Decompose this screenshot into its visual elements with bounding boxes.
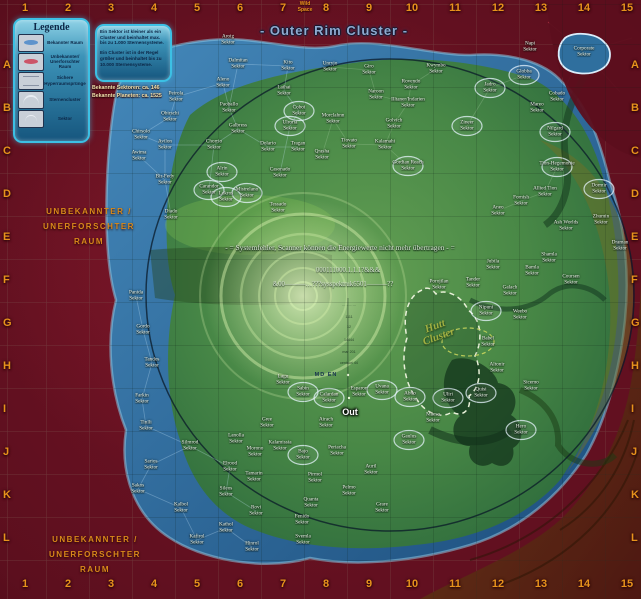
sector-label: BajoSektor bbox=[296, 449, 310, 460]
grid-column-number-top: 5 bbox=[194, 2, 200, 14]
sector-label: KalamahiSektor bbox=[375, 139, 395, 150]
sector-suffix: Sektor bbox=[283, 126, 298, 132]
sector-suffix: Sektor bbox=[144, 465, 158, 471]
sector-label: HeroSektor bbox=[514, 424, 528, 435]
grid-column-number-top: 1 bbox=[22, 2, 28, 14]
sector-label: DalmitanSektor bbox=[228, 58, 247, 69]
known-planets-count: Bekannte Planeten: ca. 1525 bbox=[92, 93, 162, 101]
sector-label: RovendoSektor bbox=[402, 79, 421, 90]
sector-suffix: Sektor bbox=[249, 511, 263, 517]
sector-label: NipuniSektor bbox=[479, 305, 493, 316]
sector-suffix: Sektor bbox=[547, 132, 563, 138]
sector-label: GolvichSektor bbox=[386, 118, 403, 129]
sector-label: MaesoSektor bbox=[426, 412, 440, 423]
sector-label: TiovatoSektor bbox=[341, 138, 357, 149]
sector-label: ChirsoloSektor bbox=[132, 129, 150, 140]
sector-label: ZhuminSektor bbox=[593, 214, 609, 225]
sector-label: AneoSektor bbox=[491, 205, 505, 216]
grid-column-number-top: 2 bbox=[65, 2, 71, 14]
grid-row-letter-right: E bbox=[631, 231, 638, 243]
sector-suffix: Sektor bbox=[490, 368, 505, 374]
sector-suffix: Sektor bbox=[562, 280, 579, 286]
grid-row-letter-left: L bbox=[3, 532, 10, 544]
sector-suffix: Sektor bbox=[474, 393, 488, 399]
sector-label: Gordian ReachSektor bbox=[392, 160, 423, 171]
sector-suffix: Sektor bbox=[228, 64, 247, 70]
sector-suffix: Sektor bbox=[276, 380, 290, 386]
sector-label: DormirSektor bbox=[591, 183, 606, 194]
sector-suffix: Sektor bbox=[483, 88, 497, 94]
sector-label: PorojilanSektor bbox=[429, 279, 448, 290]
sector-label: JadroSektor bbox=[483, 82, 497, 93]
grid-column-number-bottom: 15 bbox=[621, 578, 633, 590]
sector-label: GrareSektor bbox=[375, 502, 389, 513]
legend-swatch-blob-red bbox=[18, 53, 44, 71]
sector-suffix: Sektor bbox=[295, 520, 309, 526]
sector-label: WeeboSektor bbox=[513, 309, 527, 320]
legend-item-label: Unbekannter/ Unerforschter Raum bbox=[44, 54, 86, 70]
lines-icon bbox=[23, 76, 39, 86]
sector-suffix: Sektor bbox=[322, 119, 345, 125]
scanner-tick-label: ………… bbox=[342, 303, 356, 307]
sector-suffix: Sektor bbox=[392, 166, 423, 172]
sector-suffix: Sektor bbox=[135, 399, 149, 405]
grid-row-letter-right: B bbox=[631, 102, 639, 114]
sector-label: SilmrodSektor bbox=[182, 440, 199, 451]
sector-label: LekrosSektor bbox=[219, 191, 233, 202]
sector-suffix: Sektor bbox=[328, 451, 346, 457]
sector-suffix: Sektor bbox=[291, 147, 306, 153]
sector-suffix: Sektor bbox=[145, 363, 160, 369]
known-sectors-count: Bekannte Sektoren: ca. 146 bbox=[92, 85, 162, 93]
grid-row-letter-right: A bbox=[631, 59, 639, 71]
sector-suffix: Sektor bbox=[513, 315, 527, 321]
sector-suffix: Sektor bbox=[525, 271, 539, 277]
sector-label: CoboiSektor bbox=[292, 105, 306, 116]
system-error-text: - = Systemfehler, Scanner können die Ene… bbox=[225, 243, 455, 252]
hutt-cluster-label: Hutt Cluster bbox=[418, 316, 457, 348]
sector-label: AltonirSektor bbox=[490, 362, 505, 373]
sector-suffix: Sektor bbox=[364, 470, 378, 476]
sector-label: AroigSektor bbox=[221, 34, 235, 45]
sector-suffix: Sektor bbox=[514, 430, 528, 436]
sector-suffix: Sektor bbox=[403, 397, 417, 403]
scanner-tick-label: 14444 bbox=[344, 338, 354, 342]
sector-suffix: Sektor bbox=[533, 192, 557, 198]
grid-row-letter-left: H bbox=[3, 360, 11, 372]
sector-suffix: Sektor bbox=[323, 67, 338, 73]
sector-label: EsparonSektor bbox=[351, 386, 368, 397]
grid-row-letter-right: I bbox=[631, 403, 634, 415]
legend-swatch-arc bbox=[18, 91, 44, 109]
grid-row-letter-right: C bbox=[631, 145, 639, 157]
grid-column-number-bottom: 14 bbox=[578, 578, 590, 590]
star-map: - Outer Rim Cluster - Wild Space UNBEKAN… bbox=[0, 0, 641, 599]
sector-label: CobadoSektor bbox=[549, 91, 565, 102]
sector-suffix: Sektor bbox=[466, 283, 480, 289]
sector-label: ElroodSektor bbox=[223, 461, 237, 472]
sector-label: QrashaSektor bbox=[315, 149, 330, 160]
sector-suffix: Sektor bbox=[161, 117, 179, 123]
sector-suffix: Sektor bbox=[281, 66, 295, 72]
scanner-code-line-1: 000111000.1.1.1?&&& bbox=[316, 267, 380, 274]
scanner-tick-label: mar 201 bbox=[342, 350, 355, 354]
sector-suffix: Sektor bbox=[174, 508, 188, 514]
sector-suffix: Sektor bbox=[131, 489, 145, 495]
sector-suffix: Sektor bbox=[426, 418, 440, 424]
sector-label: Allied TionSektor bbox=[533, 186, 557, 197]
sector-suffix: Sektor bbox=[223, 467, 237, 473]
sector-suffix: Sektor bbox=[402, 440, 417, 446]
grid-row-letter-left: D bbox=[3, 188, 11, 200]
sector-label: AvilonSektor bbox=[158, 139, 172, 150]
sector-suffix: Sektor bbox=[441, 398, 455, 404]
grid-column-number-top: 10 bbox=[406, 2, 418, 14]
legend-box: Legende Bekannter RaumUnbekannter/ Unerf… bbox=[13, 18, 90, 143]
sector-suffix: Sektor bbox=[612, 246, 629, 252]
grid-column-number-bottom: 1 bbox=[22, 578, 28, 590]
sector-label: SariosSektor bbox=[144, 459, 158, 470]
sector-suffix: Sektor bbox=[247, 452, 264, 458]
sector-suffix: Sektor bbox=[260, 423, 274, 429]
sector-label: GiroSektor bbox=[362, 64, 376, 75]
sector-label: SileosSektor bbox=[219, 486, 233, 497]
grid-row-letter-left: C bbox=[3, 145, 11, 157]
sector-suffix: Sektor bbox=[549, 97, 565, 103]
sector-suffix: Sektor bbox=[277, 91, 291, 97]
grid-column-number-top: 15 bbox=[621, 2, 633, 14]
sector-label: NaroonSektor bbox=[368, 89, 384, 100]
sector-suffix: Sektor bbox=[426, 69, 445, 75]
sector-label: CorporateSektor bbox=[574, 46, 595, 57]
sector-suffix: Sektor bbox=[158, 145, 172, 151]
sector-suffix: Sektor bbox=[481, 342, 495, 348]
sector-label: DolarioSektor bbox=[260, 141, 276, 152]
sector-suffix: Sektor bbox=[375, 390, 389, 396]
sector-label: PelmoSektor bbox=[342, 485, 356, 496]
sector-label: SicemoSektor bbox=[523, 380, 539, 391]
legend-item: Bekannter Raum bbox=[15, 33, 88, 52]
info-box-paragraph-cluster: Ein Cluster ist in der Regel größer und … bbox=[100, 50, 167, 67]
grid-row-letter-right: D bbox=[631, 188, 639, 200]
grid-row-letter-right: K bbox=[631, 489, 639, 501]
legend-item-label: Sternencluster bbox=[44, 97, 86, 102]
sector-suffix: Sektor bbox=[295, 540, 311, 546]
sector-suffix: Sektor bbox=[429, 285, 448, 291]
sector-label: JubilaSektor bbox=[486, 259, 500, 270]
legend-item: Sektor bbox=[15, 109, 88, 128]
sector-suffix: Sektor bbox=[221, 40, 235, 46]
sector-suffix: Sektor bbox=[169, 97, 184, 103]
arc2-icon bbox=[25, 115, 37, 122]
grid-column-number-top: 8 bbox=[323, 2, 329, 14]
grid-row-letter-left: E bbox=[3, 231, 10, 243]
grid-column-number-bottom: 12 bbox=[492, 578, 504, 590]
legend-item: Sternencluster bbox=[15, 90, 88, 109]
sector-suffix: Sektor bbox=[503, 291, 518, 297]
sector-suffix: Sektor bbox=[139, 426, 153, 432]
sector-label: GreeSektor bbox=[260, 417, 274, 428]
sector-suffix: Sektor bbox=[341, 144, 357, 150]
sector-suffix: Sektor bbox=[315, 155, 330, 161]
legend-title: Legende bbox=[15, 22, 88, 33]
sector-suffix: Sektor bbox=[541, 258, 557, 264]
sector-suffix: Sektor bbox=[351, 392, 368, 398]
md-en-label: MD EN bbox=[315, 372, 338, 378]
scanner-tick-label: 12 bbox=[347, 325, 351, 329]
sector-label: HinrolSektor bbox=[245, 541, 259, 552]
grid-row-letter-right: H bbox=[631, 360, 639, 372]
sector-suffix: Sektor bbox=[593, 220, 609, 226]
sector-suffix: Sektor bbox=[319, 423, 333, 429]
sector-suffix: Sektor bbox=[199, 190, 218, 196]
out-label: Out bbox=[342, 407, 358, 417]
grid-row-letter-right: J bbox=[631, 446, 637, 458]
sector-label: GaulusSektor bbox=[402, 434, 417, 445]
sector-label: AirachSektor bbox=[319, 417, 333, 428]
sector-suffix: Sektor bbox=[460, 126, 474, 132]
sector-label: TamarinSektor bbox=[245, 471, 262, 482]
sector-label: KwymboSektor bbox=[426, 63, 445, 74]
sector-label: PeriachaSektor bbox=[328, 445, 346, 456]
sector-suffix: Sektor bbox=[574, 52, 595, 58]
statistics-text: Bekannte Sektoren: ca. 146 Bekannte Plan… bbox=[92, 85, 162, 101]
blob-blue-icon bbox=[24, 40, 38, 45]
sector-label: PaoballoSektor bbox=[220, 102, 238, 113]
sector-suffix: Sektor bbox=[216, 83, 230, 89]
sector-suffix: Sektor bbox=[479, 311, 493, 317]
sector-suffix: Sektor bbox=[136, 330, 150, 336]
sector-label: QuantaSektor bbox=[304, 497, 319, 508]
sector-suffix: Sektor bbox=[516, 75, 531, 81]
sector-suffix: Sektor bbox=[296, 455, 310, 461]
sector-label: CarandorSektor bbox=[199, 184, 218, 195]
sector-suffix: Sektor bbox=[182, 446, 199, 452]
grid-row-letter-right: F bbox=[631, 274, 638, 286]
sector-suffix: Sektor bbox=[270, 208, 287, 214]
grid-column-number-bottom: 10 bbox=[406, 578, 418, 590]
sector-suffix: Sektor bbox=[156, 180, 175, 186]
sector-suffix: Sektor bbox=[219, 528, 233, 534]
sector-suffix: Sektor bbox=[219, 492, 233, 498]
sector-suffix: Sektor bbox=[270, 173, 290, 179]
sector-label: AwimaSektor bbox=[132, 150, 147, 161]
info-box-paragraph-sektor: Ein Sektor ist kleiner als ein Cluster u… bbox=[100, 29, 167, 46]
sector-label: UnryjoSektor bbox=[323, 61, 338, 72]
sector-label: GalachSektor bbox=[503, 285, 518, 296]
sector-label: FenidoSektor bbox=[295, 514, 309, 525]
legend-swatch-blob-blue bbox=[18, 34, 44, 52]
sector-label: AlenoSektor bbox=[216, 77, 230, 88]
sector-label: GlobbaSektor bbox=[516, 69, 531, 80]
sector-suffix: Sektor bbox=[591, 189, 606, 195]
sector-label: ZineerSektor bbox=[460, 120, 474, 131]
sector-label: LaihaiSektor bbox=[277, 85, 291, 96]
map-title: - Outer Rim Cluster - bbox=[260, 23, 408, 38]
sector-label: CasonadoSektor bbox=[270, 167, 290, 178]
sector-suffix: Sektor bbox=[229, 129, 247, 135]
grid-row-letter-left: B bbox=[3, 102, 11, 114]
legend-item-label: Sektor bbox=[44, 116, 86, 121]
sector-suffix: Sektor bbox=[268, 446, 291, 452]
sector-suffix: Sektor bbox=[219, 197, 233, 203]
sector-label: AurilSektor bbox=[364, 464, 378, 475]
sector-label: BabelSektor bbox=[481, 336, 495, 347]
sector-label: Ash WorldsSektor bbox=[554, 220, 578, 231]
sector-label: AlrinSektor bbox=[215, 166, 229, 177]
grid-row-letter-right: L bbox=[631, 532, 638, 544]
sector-suffix: Sektor bbox=[375, 508, 389, 514]
grid-column-number-top: 3 bbox=[108, 2, 114, 14]
sector-suffix: Sektor bbox=[554, 226, 578, 232]
sector-label: MorclahnnSektor bbox=[322, 113, 345, 124]
sector-label: PanidaSektor bbox=[129, 290, 143, 301]
sector-suffix: Sektor bbox=[539, 167, 574, 173]
grid-row-letter-left: A bbox=[3, 59, 11, 71]
grid-column-number-top: 4 bbox=[151, 2, 157, 14]
sector-label: SvemlaSektor bbox=[295, 534, 311, 545]
grid-column-number-bottom: 2 bbox=[65, 578, 71, 590]
grid-column-number-bottom: 5 bbox=[194, 578, 200, 590]
sector-label: DramanSektor bbox=[612, 240, 629, 251]
grid-column-number-top: 12 bbox=[492, 2, 504, 14]
sector-label: KafirolSektor bbox=[190, 534, 205, 545]
sector-suffix: Sektor bbox=[132, 156, 147, 162]
sector-label: TessadoSektor bbox=[270, 202, 287, 213]
grid-column-number-top: 9 bbox=[366, 2, 372, 14]
grid-row-letter-left: K bbox=[3, 489, 11, 501]
sector-label: KalbolSektor bbox=[174, 502, 188, 513]
sector-label: TandosSektor bbox=[145, 357, 160, 368]
grid-column-number-bottom: 8 bbox=[323, 578, 329, 590]
sector-suffix: Sektor bbox=[220, 108, 238, 114]
sector-label: GalbressSektor bbox=[229, 123, 247, 134]
grid-row-letter-right: G bbox=[631, 317, 640, 329]
sector-label: PeirolaSektor bbox=[169, 91, 184, 102]
legend-item-label: Sichere Hyperraumsprünge bbox=[44, 75, 86, 85]
sector-suffix: Sektor bbox=[386, 124, 403, 130]
sector-suffix: Sektor bbox=[245, 547, 259, 553]
unknown-space-label-west: UNBEKANNTER / UNERFORSCHTER RAUM bbox=[8, 204, 170, 250]
scanner-code-line-2: &00———…???sysspektruk6501———?? bbox=[273, 281, 393, 288]
grid-column-number-bottom: 3 bbox=[108, 578, 114, 590]
sector-suffix: Sektor bbox=[206, 145, 222, 151]
sector-label: CalardanSektor bbox=[320, 392, 339, 403]
grid-column-number-bottom: 13 bbox=[535, 578, 547, 590]
sector-suffix: Sektor bbox=[491, 211, 505, 217]
scanner-tick-label: 1111 bbox=[345, 315, 352, 319]
legend-item: Unbekannter/ Unerforschter Raum bbox=[15, 52, 88, 71]
sector-suffix: Sektor bbox=[215, 172, 229, 178]
sector-label: UvanaSektor bbox=[375, 384, 389, 395]
sector-suffix: Sektor bbox=[402, 85, 421, 91]
sector-label: ShamlaSektor bbox=[541, 252, 557, 263]
grid-column-number-bottom: 6 bbox=[237, 578, 243, 590]
sector-label: KalamissiaSektor bbox=[268, 440, 291, 451]
sector-label: MoronoSektor bbox=[247, 446, 264, 457]
sector-suffix: Sektor bbox=[523, 386, 539, 392]
sector-label: PirmolSektor bbox=[308, 472, 322, 483]
sector-suffix: Sektor bbox=[513, 201, 529, 207]
sector-label: MareoSektor bbox=[530, 102, 544, 113]
unknown-space-label-southwest: UNBEKANNTER / UNERFORSCHTER RAUM bbox=[14, 532, 176, 578]
sector-label: LanollaSektor bbox=[228, 433, 244, 444]
sector-label: AbiloSektor bbox=[403, 391, 417, 402]
sector-suffix: Sektor bbox=[362, 70, 376, 76]
sector-label: UlroriaSektor bbox=[283, 120, 298, 131]
sector-label: Bir-FedySektor bbox=[156, 174, 175, 185]
sector-label: FornishSektor bbox=[513, 195, 529, 206]
sector-suffix: Sektor bbox=[304, 503, 319, 509]
legend-item: Sichere Hyperraumsprünge bbox=[15, 71, 88, 90]
grid-row-letter-left: J bbox=[3, 446, 9, 458]
grid-column-number-top: 11 bbox=[449, 2, 461, 14]
sector-label: FarkinSektor bbox=[135, 393, 149, 404]
sector-suffix: Sektor bbox=[486, 265, 500, 271]
sector-suffix: Sektor bbox=[260, 147, 276, 153]
arc-icon bbox=[23, 95, 39, 105]
sector-label: Illtaner/IndarienSektor bbox=[391, 97, 425, 108]
sector-suffix: Sektor bbox=[296, 392, 310, 398]
sector-suffix: Sektor bbox=[132, 135, 150, 141]
sector-label: LaguSektor bbox=[276, 374, 290, 385]
grid-column-number-top: 13 bbox=[535, 2, 547, 14]
sector-suffix: Sektor bbox=[320, 398, 339, 404]
sector-suffix: Sektor bbox=[236, 193, 258, 199]
sector-label: RoviSektor bbox=[249, 505, 263, 516]
sector-label: QuisiSektor bbox=[474, 387, 488, 398]
sector-label: Tion-HegemonieSektor bbox=[539, 161, 574, 172]
grid-column-number-top: 7 bbox=[280, 2, 286, 14]
sector-label: KatholSektor bbox=[219, 522, 233, 533]
sector-suffix: Sektor bbox=[245, 477, 262, 483]
sector-label: BamlaSektor bbox=[525, 265, 539, 276]
grid-column-number-bottom: 11 bbox=[449, 578, 461, 590]
sector-label: TraganSektor bbox=[291, 141, 306, 152]
sector-label: NilgardSektor bbox=[547, 126, 563, 137]
sector-suffix: Sektor bbox=[190, 540, 205, 546]
sector-label: GordoSektor bbox=[136, 324, 150, 335]
sector-suffix: Sektor bbox=[292, 111, 306, 117]
sector-label: SabinSektor bbox=[296, 386, 310, 397]
sector-label: UliriSektor bbox=[441, 392, 455, 403]
grid-column-number-bottom: 9 bbox=[366, 578, 372, 590]
legend-rows: Bekannter RaumUnbekannter/ Unerforschter… bbox=[15, 33, 88, 128]
grid-row-letter-left: G bbox=[3, 317, 12, 329]
sector-suffix: Sektor bbox=[523, 47, 537, 53]
sector-label: TanderSektor bbox=[466, 277, 480, 288]
grid-row-letter-left: I bbox=[3, 403, 6, 415]
sector-suffix: Sektor bbox=[342, 491, 356, 497]
scanner-tick-label: centauri 44 bbox=[340, 361, 358, 365]
grid-column-number-bottom: 7 bbox=[280, 578, 286, 590]
sector-suffix: Sektor bbox=[164, 215, 178, 221]
wild-space-label: Wild Space bbox=[298, 1, 313, 13]
sector-suffix: Sektor bbox=[530, 108, 544, 114]
sector-label: DiadoSektor bbox=[164, 209, 178, 220]
grid-column-number-bottom: 4 bbox=[151, 578, 157, 590]
sector-label: ChorrioSektor bbox=[206, 139, 222, 150]
grid-column-number-top: 6 bbox=[237, 2, 243, 14]
sector-label: TinlliSektor bbox=[139, 420, 153, 431]
sector-label: NapiSektor bbox=[523, 41, 537, 52]
sector-suffix: Sektor bbox=[368, 95, 384, 101]
blob-red-icon bbox=[24, 59, 38, 64]
legend-item-label: Bekannter Raum bbox=[44, 40, 86, 45]
sector-label: CoursenSektor bbox=[562, 274, 579, 285]
legend-swatch-arc2 bbox=[18, 110, 44, 128]
sector-label: KitoSektor bbox=[281, 60, 295, 71]
